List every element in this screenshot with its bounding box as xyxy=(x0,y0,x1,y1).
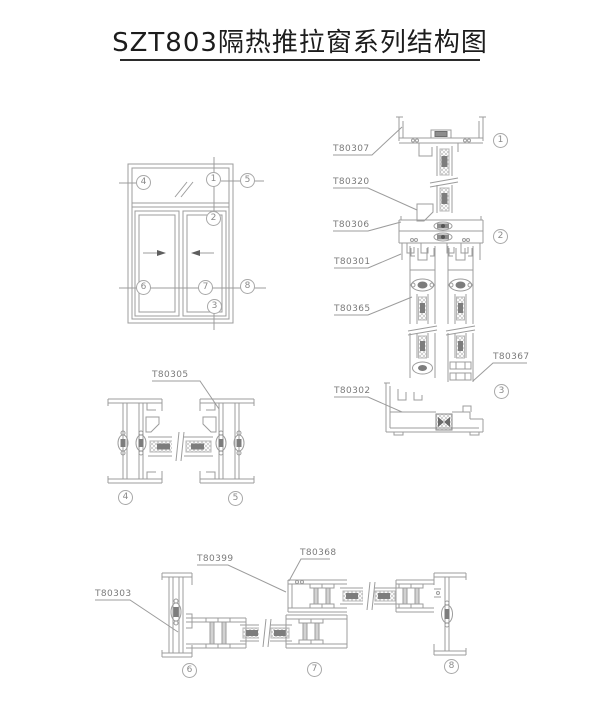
fixed-glass-unit xyxy=(430,146,458,213)
glass-hatch-mark xyxy=(175,182,193,197)
sill-profile xyxy=(384,383,483,435)
callout-midsection-5: 5 xyxy=(228,491,243,506)
callout-elevation-3: 3 xyxy=(207,299,222,314)
glazing-bracket xyxy=(417,204,433,221)
part-label-t80302: T80302 xyxy=(334,386,371,397)
callout-midsection-4: 4 xyxy=(118,490,133,505)
part-label-t80320: T80320 xyxy=(333,177,370,188)
callout-elevation-7: 7 xyxy=(198,280,213,295)
callout-bottomsection-8: 8 xyxy=(444,659,459,674)
callout-elevation-1: 1 xyxy=(206,172,221,187)
callout-vsection-2: 2 xyxy=(493,229,508,244)
transom-profile xyxy=(399,216,483,260)
part-label-t80306: T80306 xyxy=(333,220,370,231)
jamb-profile-bottom-right xyxy=(434,573,466,655)
part-label-t80367: T80367 xyxy=(493,352,530,363)
sash-section-right xyxy=(446,246,475,382)
sash-rail-upper xyxy=(288,580,434,612)
leader-t80302 xyxy=(334,397,402,412)
sash-section-left xyxy=(408,246,437,378)
horizontal-section-bottom xyxy=(95,559,466,657)
part-label-t80399: T80399 xyxy=(197,554,234,565)
callout-elevation-4: 4 xyxy=(136,175,151,190)
callout-elevation-5: 5 xyxy=(240,173,255,188)
leader-t80303 xyxy=(95,600,178,632)
callout-elevation-6: 6 xyxy=(136,280,151,295)
callout-vsection-1: 1 xyxy=(493,133,508,148)
leader-t80367 xyxy=(473,363,527,381)
leader-t80368 xyxy=(289,559,330,581)
callout-bottomsection-7: 7 xyxy=(307,662,322,677)
leader-t80399 xyxy=(197,565,286,592)
part-label-t80303: T80303 xyxy=(95,589,132,600)
part-label-t80307: T80307 xyxy=(333,144,370,155)
callout-elevation-2: 2 xyxy=(206,211,221,226)
leader-t80320 xyxy=(333,188,417,210)
callout-bottomsection-6: 6 xyxy=(182,663,197,678)
callout-vsection-3: 3 xyxy=(494,384,509,399)
horizontal-section-mid xyxy=(108,381,254,483)
sash-rail-lower xyxy=(186,615,347,648)
drawing-sheet: SZT803隔热推拉窗系列结构图 xyxy=(0,0,600,719)
part-label-t80305: T80305 xyxy=(152,370,189,381)
part-label-t80301: T80301 xyxy=(334,257,371,268)
callout-elevation-8: 8 xyxy=(240,279,255,294)
part-label-t80365: T80365 xyxy=(334,304,371,315)
glass-bar-mid xyxy=(148,432,213,461)
part-label-t80368: T80368 xyxy=(300,548,337,559)
